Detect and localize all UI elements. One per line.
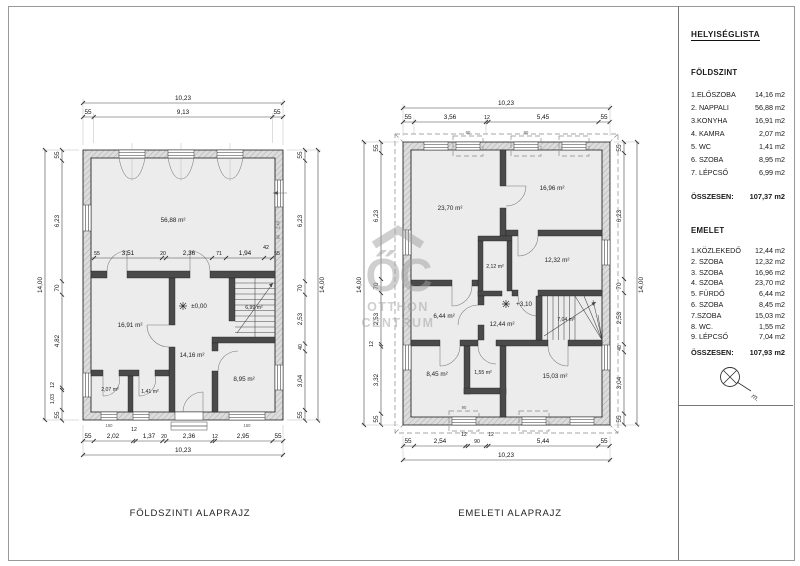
room-area: 16,91 m2 [755,116,785,129]
room-area: 2,07 m2 [759,129,785,142]
upper-section-heading: EMELET [691,226,724,235]
dim-label: 1,37 [143,433,156,440]
room-name: 1.ELŐSZOBA [691,90,736,103]
north-arrow-icon: m. [715,364,763,406]
tag-label: 90 [462,405,467,410]
dim-label: 10,23 [175,447,191,454]
upper-floor-plan: 10,23 55 3,56 12 5,45 55 14,00 55 6,23 7… [352,90,652,470]
room-list-item: 2. SZOBA12,32 m2 [691,257,785,268]
room-list-item: 3. SZOBA16,96 m2 [691,268,785,279]
room-name: 6. SZOBA [691,155,723,168]
dim-label: 2,53 [297,312,304,325]
dim-label: 55 [274,251,280,257]
room-area: 8,95 m2 [759,155,785,168]
dim-label: 2,53 [616,311,623,324]
dimension-lines-top: 10,23 55 9,13 55 [81,95,285,119]
room-area: 8,45 m2 [759,300,785,311]
room-list-item: 2. NAPPALI56,88 m2 [691,103,785,116]
room-area-label: 2,12 m² [486,264,504,270]
room-name: 7.SZOBA [691,311,721,322]
total-label: ÖSSZESEN: [691,348,734,357]
dim-label: 55 [616,415,623,423]
dim-label: 10,23 [498,452,514,459]
room-list-item: 6. SZOBA8,95 m2 [691,155,785,168]
ground-total: ÖSSZESEN:107,37 m2 [691,192,785,201]
upper-room-list: 1.KÖZLEKEDŐ12,44 m2 2. SZOBA12,32 m2 3. … [691,246,785,343]
dim-label: 3,51 [122,250,135,257]
dim-label: 14,00 [356,277,363,293]
room-list-item: 4. SZOBA23,70 m2 [691,278,785,289]
room-area: 7,04 m2 [759,332,785,343]
dim-label: 55 [84,433,92,440]
room-area-label: 8,45 m² [426,371,447,378]
room-area-label: 1,55 m² [474,370,492,376]
room-list-item: 7.SZOBA15,03 m2 [691,311,785,322]
dim-label: 55 [54,151,61,159]
room-area: 23,70 m2 [755,278,785,289]
room-area: 56,88 m2 [755,103,785,116]
dim-label: 5,45 [537,114,550,121]
dimension-lines-bottom: 55 2,54 12 90 12 5,44 55 10,23 [401,432,612,462]
dim-label: 10,23 [498,100,514,107]
room-list-panel: HELYISÉGLISTA FÖLDSZINT 1.ELŐSZOBA14,16 … [679,6,793,560]
dim-label: 40 [298,344,304,350]
room-area-label: 1,41 m² [141,389,159,395]
room-list-item: 6. SZOBA8,45 m2 [691,300,785,311]
dim-label: 20 [161,434,167,440]
room-name: 4. SZOBA [691,278,723,289]
room-area-label: 56,88 m² [161,217,186,224]
dim-label: 10,23 [175,95,191,102]
level-label: +3,10 [516,301,532,308]
dim-label: 70 [616,282,623,290]
room-name: 5. WC [691,142,711,155]
ground-room-list: 1.ELŐSZOBA14,16 m2 2. NAPPALI56,88 m2 3.… [691,90,785,181]
room-name: 5. FÜRDŐ [691,289,725,300]
ground-floor-plan: 10,23 55 9,13 55 14,00 55 6,23 70 4,82 1… [33,85,333,465]
room-area: 16,96 m2 [755,268,785,279]
total-area: 107,37 m2 [750,192,785,201]
dim-label: 2,95 [237,433,250,440]
room-area-label: 15,03 m² [543,373,568,380]
room-area-label: 7,04 m² [557,317,575,323]
dim-label: 55 [600,114,608,121]
total-label: ÖSSZESEN: [691,192,734,201]
dim-label: 14,00 [319,277,326,293]
dim-label: 55 [373,415,380,423]
room-area-label: 12,44 m² [490,321,515,328]
room-area-label: 6,99 m² [245,305,263,311]
dim-label: 90 [474,439,480,445]
room-list-item: 9. LÉPCSŐ7,04 m2 [691,332,785,343]
room-area-label: 16,91 m² [118,322,143,329]
dim-label: 55 [297,151,304,159]
room-list-item: 5. FÜRDŐ6,44 m2 [691,289,785,300]
dimension-lines-right: 55 6,23 70 2,53 40 3,04 55 14,00 [297,148,326,423]
room-area: 12,32 m2 [755,257,785,268]
room-area-label: 2,07 m² [101,387,119,393]
north-arrow-label: m. [750,393,760,403]
dim-label: 70 [54,284,61,292]
room-name: 3. SZOBA [691,268,723,279]
room-area: 12,44 m2 [755,246,785,257]
total-area: 107,93 m2 [750,348,785,357]
room-name: 2. NAPPALI [691,103,729,116]
dim-label: 55 [94,251,100,257]
dim-label: 55 [297,411,304,419]
room-name: 1.KÖZLEKEDŐ [691,246,741,257]
dim-label: 3,56 [444,114,457,121]
ground-level-marker: ±0,00 [179,302,207,310]
dim-label: 2,36 [183,433,196,440]
tag-label: 150 [106,423,114,428]
dim-label: 3,32 [373,373,380,386]
room-name: 9. LÉPCSŐ [691,332,728,343]
room-name: 8. WC. [691,322,713,333]
dimension-lines-bottom: 55 2,02 12 1,37 20 2,36 12 2,95 55 10,23 [81,427,285,457]
tag-label: 150 [244,423,252,428]
dim-label: 12 [50,382,56,388]
dim-label: 71 [216,251,222,257]
dimension-lines-left: 14,00 55 6,23 70 4,82 12 1,03 55 [37,148,64,423]
room-name: 3.KONYHA [691,116,727,129]
dim-label: 12 [212,434,218,440]
level-label: ±0,00 [191,303,207,310]
room-list-item: 1.KÖZLEKEDŐ12,44 m2 [691,246,785,257]
room-area-label: 12,32 m² [545,257,570,264]
dim-label: 55 [404,438,412,445]
ground-section-heading: FÖLDSZINT [691,68,737,77]
room-list-item: 7. LÉPCSŐ6,99 m2 [691,168,785,181]
dim-label: 70 [373,282,380,290]
room-area-label: 8,95 m² [233,376,254,383]
dim-label: 2,02 [107,433,120,440]
room-area: 15,03 m2 [755,311,785,322]
tag-label: 90 [276,234,281,239]
room-name: 4. KAMRA [691,129,725,142]
dimension-lines-right: 55 6,23 70 2,53 40 3,04 55 14,00 [616,140,645,427]
dim-label: 12 [484,115,490,121]
tag-label: 2,40 [276,220,281,229]
dim-label: 6,23 [297,214,304,227]
dim-label: 42 [263,245,269,251]
ground-plan-title: FÖLDSZINTI ALAPRAJZ [80,508,300,519]
dim-label: 3,04 [616,376,623,389]
dim-label: 9,13 [177,109,190,116]
dim-label: 1,94 [239,250,252,257]
dim-label: 55 [404,114,412,121]
room-area-label: 16,96 m² [540,185,565,192]
dimension-lines-left: 14,00 55 6,23 70 2,53 12 3,32 55 [356,140,383,427]
dim-label: 6,23 [54,214,61,227]
room-area: 6,44 m2 [759,289,785,300]
dim-label: 20 [160,251,166,257]
dim-label: 2,36 [183,250,196,257]
dim-label: 55 [274,433,282,440]
dim-label: 55 [273,109,281,116]
upper-plan-title: EMELETI ALAPRAJZ [400,508,620,519]
room-list-item: 3.KONYHA16,91 m2 [691,116,785,129]
room-area-label: 14,16 m² [180,352,205,359]
dim-label: 14,00 [638,277,645,293]
room-list-item: 4. KAMRA2,07 m2 [691,129,785,142]
dim-label: 55 [84,109,92,116]
room-list-item: 1.ELŐSZOBA14,16 m2 [691,90,785,103]
dim-label: 12 [369,341,375,347]
dim-label: 4,82 [54,334,61,347]
dim-label: 1,03 [50,394,56,404]
dim-label: 55 [373,144,380,152]
room-area: 1,55 m2 [759,322,785,333]
room-area: 14,16 m2 [755,90,785,103]
dim-label: 2,53 [373,312,380,325]
room-list-item: 5. WC1,41 m2 [691,142,785,155]
upper-total: ÖSSZESEN:107,93 m2 [691,348,785,357]
dim-label: 55 [600,438,608,445]
dim-label: 55 [54,411,61,419]
tag-label: 90 [524,130,529,135]
room-list-title: HELYISÉGLISTA [691,30,760,41]
dim-label: 2,54 [434,438,447,445]
room-area: 1,41 m2 [759,142,785,155]
dim-label: 55 [616,144,623,152]
room-name: 6. SZOBA [691,300,723,311]
dim-label: 3,04 [297,374,304,387]
dim-label: 6,23 [373,209,380,222]
room-area-label: 6,44 m² [433,313,454,320]
tag-label: 90 [466,130,471,135]
room-list-item: 8. WC.1,55 m2 [691,322,785,333]
dim-label: 12 [131,427,137,433]
dim-label: 14,00 [37,277,44,293]
dim-label: 5,44 [537,438,550,445]
room-area: 6,99 m2 [759,168,785,181]
room-name: 2. SZOBA [691,257,723,268]
room-name: 7. LÉPCSŐ [691,168,728,181]
dimension-lines-top: 10,23 55 3,56 12 5,45 55 [401,100,612,124]
dim-label: 70 [297,284,304,292]
room-area-label: 23,70 m² [438,205,463,212]
dim-label: 6,23 [616,209,623,222]
